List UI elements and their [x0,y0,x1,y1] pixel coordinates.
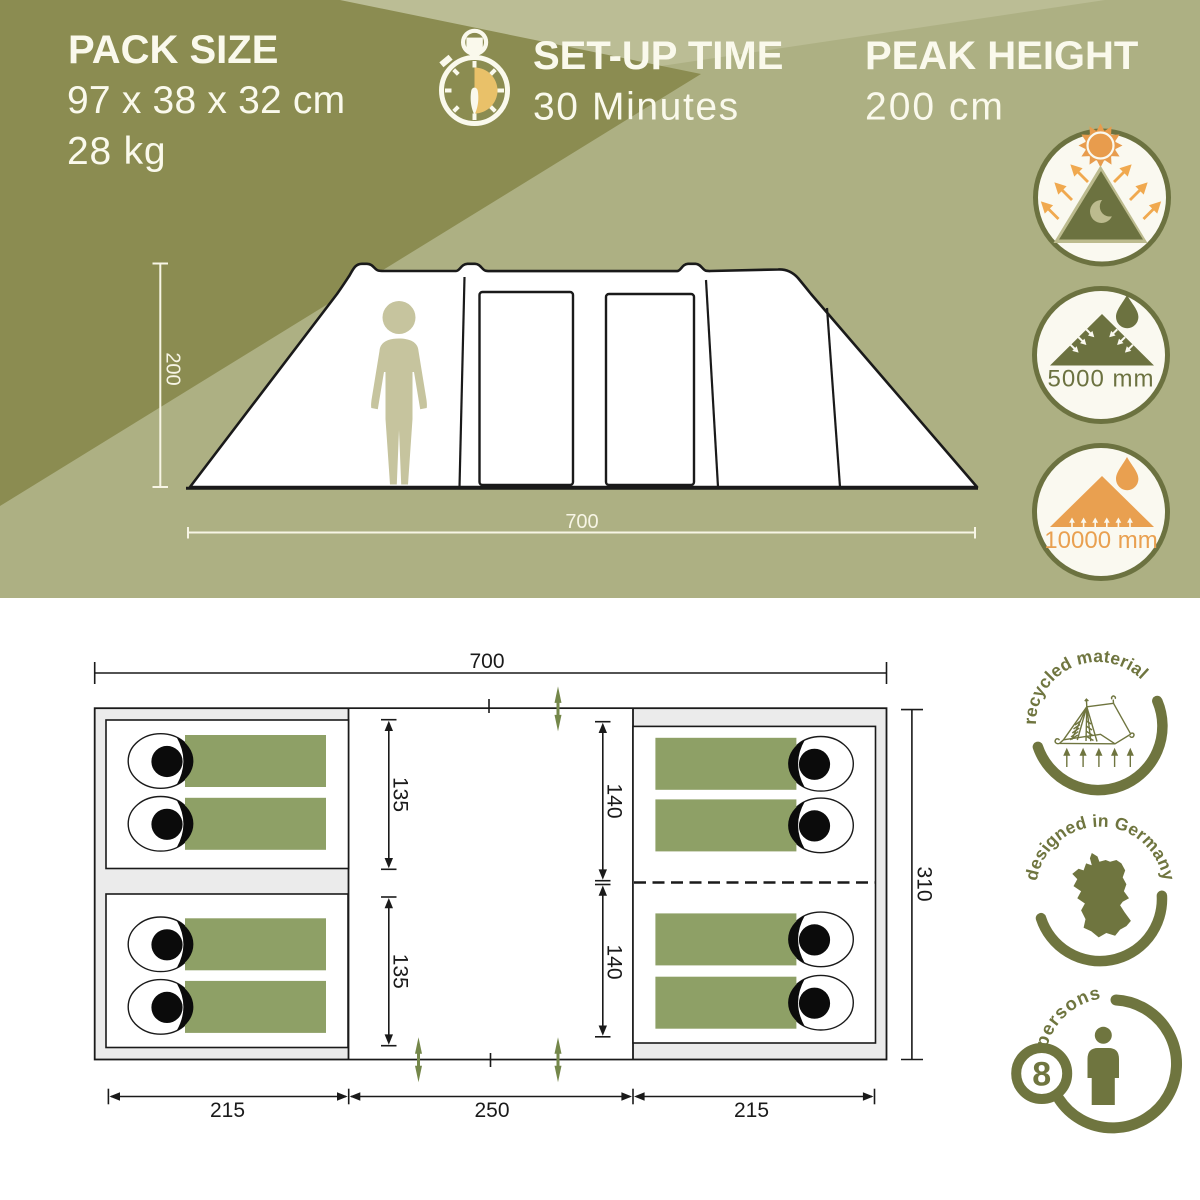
svg-text:700: 700 [565,511,598,533]
svg-text:30 Minutes: 30 Minutes [533,86,740,129]
svg-text:215: 215 [210,1099,245,1122]
svg-text:PEAK HEIGHT: PEAK HEIGHT [865,34,1138,78]
svg-text:persons: persons [1030,982,1102,1050]
svg-text:250: 250 [474,1099,509,1122]
svg-text:135: 135 [389,777,412,812]
svg-text:5000 mm: 5000 mm [1047,366,1154,393]
svg-text:SET-UP TIME: SET-UP TIME [533,34,783,78]
svg-text:215: 215 [734,1099,769,1122]
svg-text:700: 700 [469,650,504,673]
svg-text:140: 140 [603,944,626,979]
svg-text:310: 310 [913,866,936,901]
svg-text:135: 135 [389,954,412,989]
svg-text:200 cm: 200 cm [865,86,1005,129]
svg-text:28 kg: 28 kg [67,130,166,173]
svg-text:10000 mm: 10000 mm [1044,527,1157,554]
svg-text:97 x 38 x 32 cm: 97 x 38 x 32 cm [67,79,345,122]
svg-text:PACK SIZE: PACK SIZE [68,28,278,72]
svg-text:8: 8 [1032,1056,1051,1094]
svg-text:140: 140 [603,783,626,818]
svg-text:200: 200 [162,352,184,385]
